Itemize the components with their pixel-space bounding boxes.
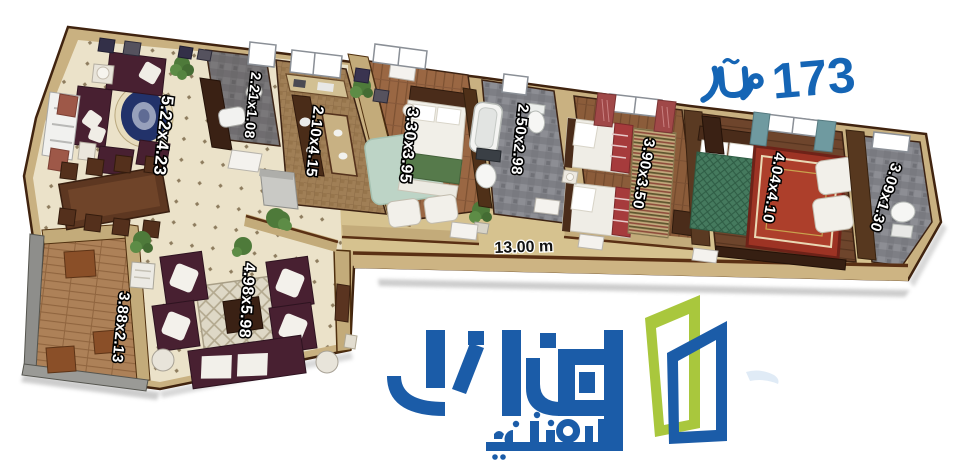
svg-text:13.00 m: 13.00 m [494, 238, 553, 257]
svg-text:173: 173 [770, 47, 858, 110]
